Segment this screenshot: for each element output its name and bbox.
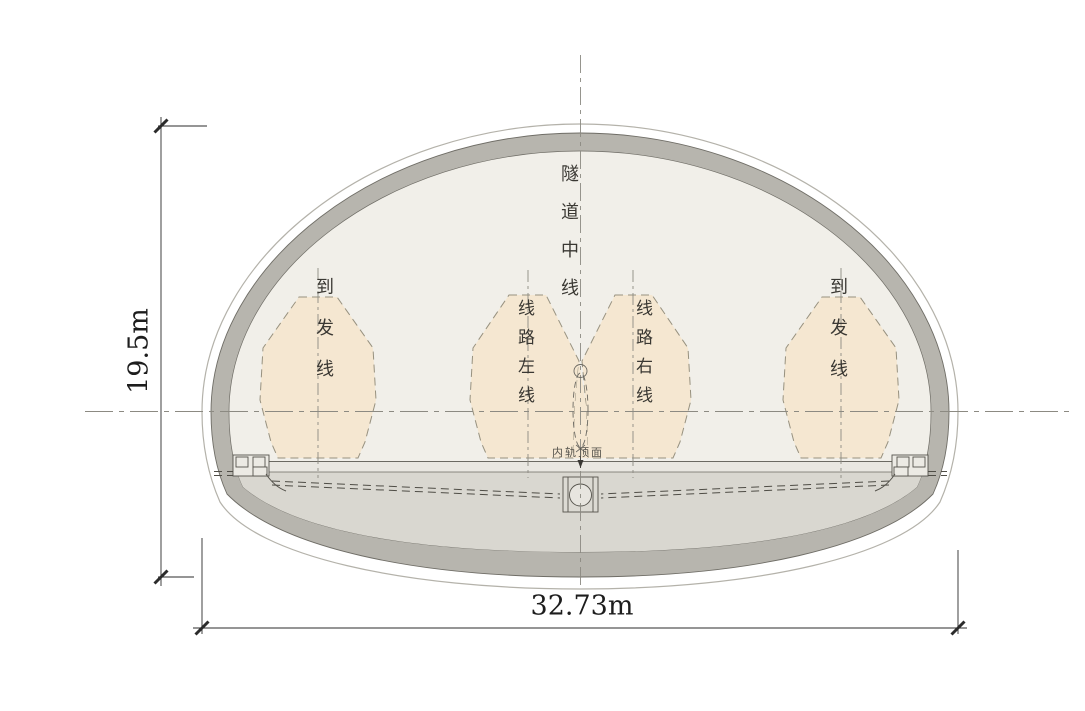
tunnel-section-drawing: 隧道中线 到发线 线路左线 线路右线 到发线 内轨顶面 19.5m 32.73m [0, 0, 1085, 711]
tunnel-centerline-label: 隧道中线 [556, 164, 582, 316]
height-dimension [155, 117, 208, 586]
main-line-left-label: 线路左线 [512, 299, 537, 415]
width-dimension-value: 32.73m [531, 591, 634, 622]
siding-left-label: 到发线 [311, 277, 337, 400]
rail-top-surface-label: 内轨顶面 [552, 444, 604, 460]
cable-trough-right [892, 455, 928, 476]
height-dimension-value: 19.5m [124, 308, 155, 394]
siding-right-label: 到发线 [825, 277, 851, 400]
main-line-right-label: 线路右线 [630, 299, 655, 415]
cable-trough-left [233, 455, 269, 476]
